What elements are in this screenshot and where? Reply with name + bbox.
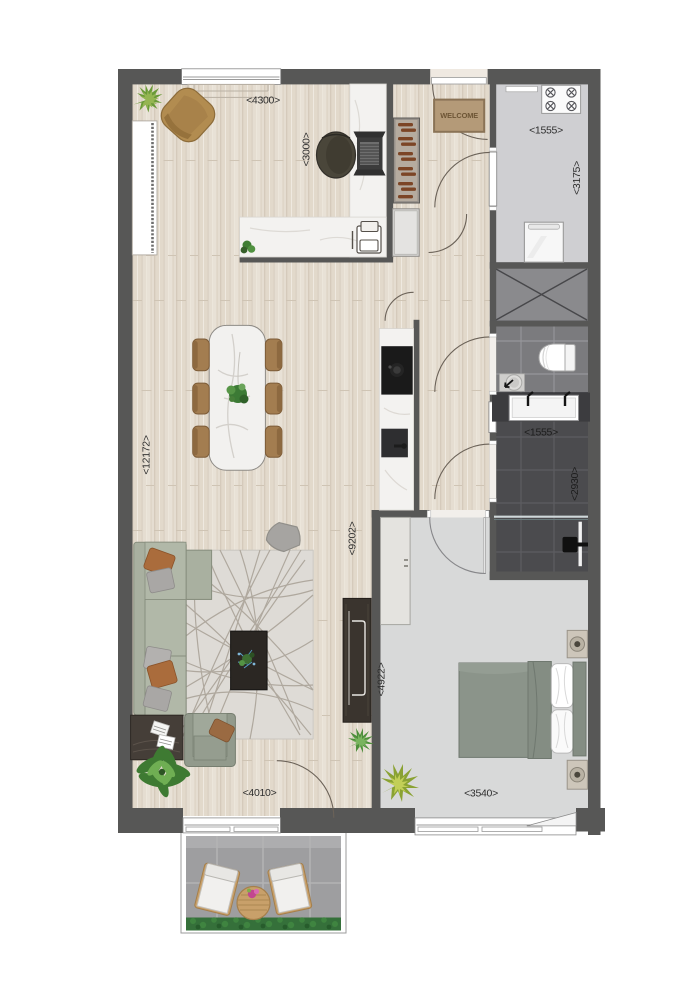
svg-text:<12172>: <12172> — [141, 435, 153, 475]
svg-text:<4922>: <4922> — [376, 662, 388, 696]
svg-text:<3540>: <3540> — [464, 788, 498, 800]
svg-text:<1555>: <1555> — [529, 125, 563, 137]
svg-text:WELCOME: WELCOME — [440, 111, 478, 120]
svg-text:<2930>: <2930> — [569, 467, 581, 501]
svg-text:<4300>: <4300> — [246, 95, 280, 107]
svg-text:<3175>: <3175> — [571, 161, 583, 195]
svg-text:<1555>: <1555> — [524, 427, 558, 439]
svg-text:<3000>: <3000> — [301, 132, 313, 166]
svg-text:<9202>: <9202> — [347, 521, 359, 555]
svg-text:<4010>: <4010> — [243, 787, 277, 799]
